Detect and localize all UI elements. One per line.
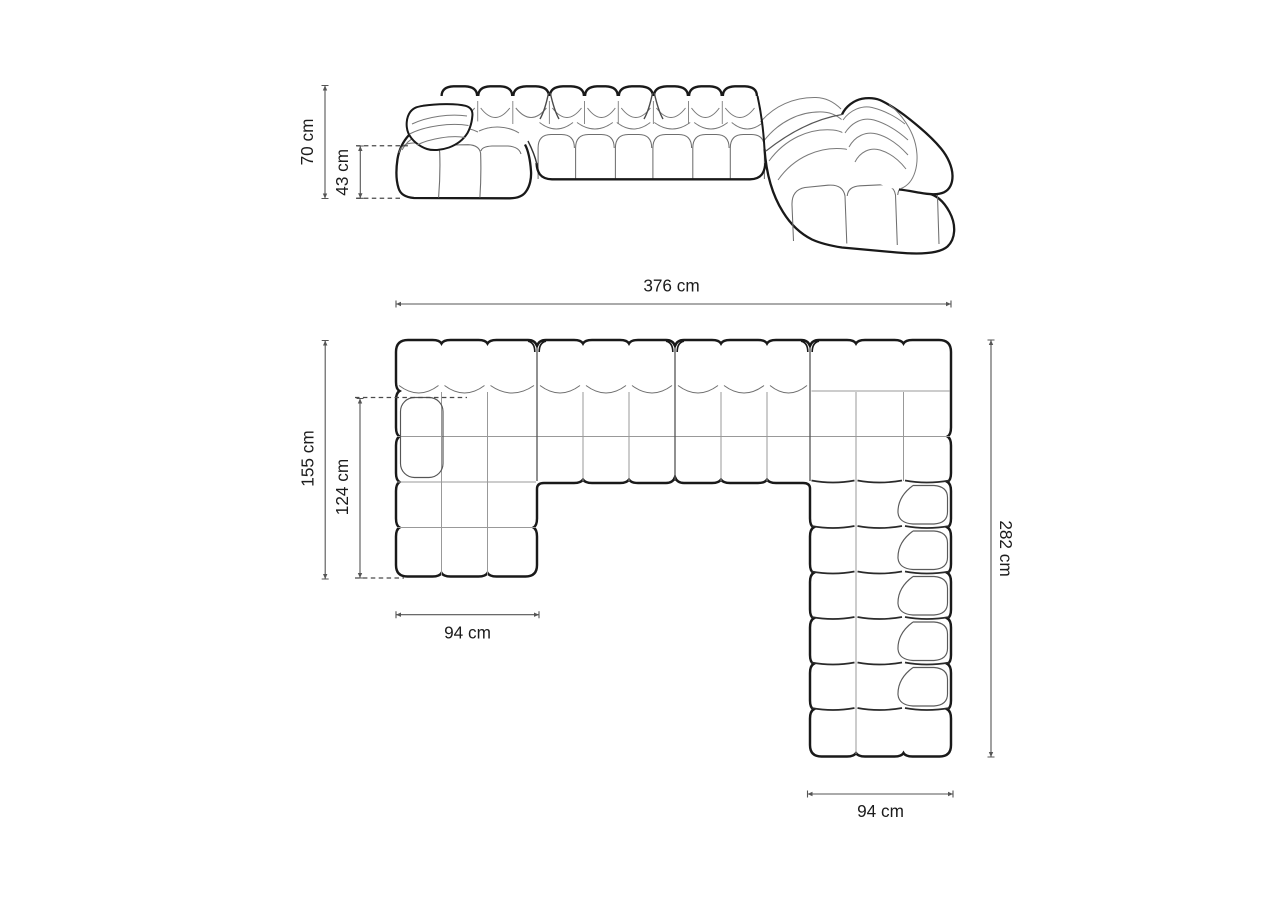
svg-text:124 cm: 124 cm: [332, 459, 352, 515]
svg-text:94 cm: 94 cm: [857, 801, 904, 821]
svg-text:43 cm: 43 cm: [332, 149, 352, 196]
svg-text:282 cm: 282 cm: [996, 520, 1016, 576]
svg-text:70 cm: 70 cm: [297, 119, 317, 166]
svg-text:155 cm: 155 cm: [298, 430, 318, 486]
svg-text:376 cm: 376 cm: [643, 276, 699, 296]
svg-text:94 cm: 94 cm: [444, 623, 491, 643]
